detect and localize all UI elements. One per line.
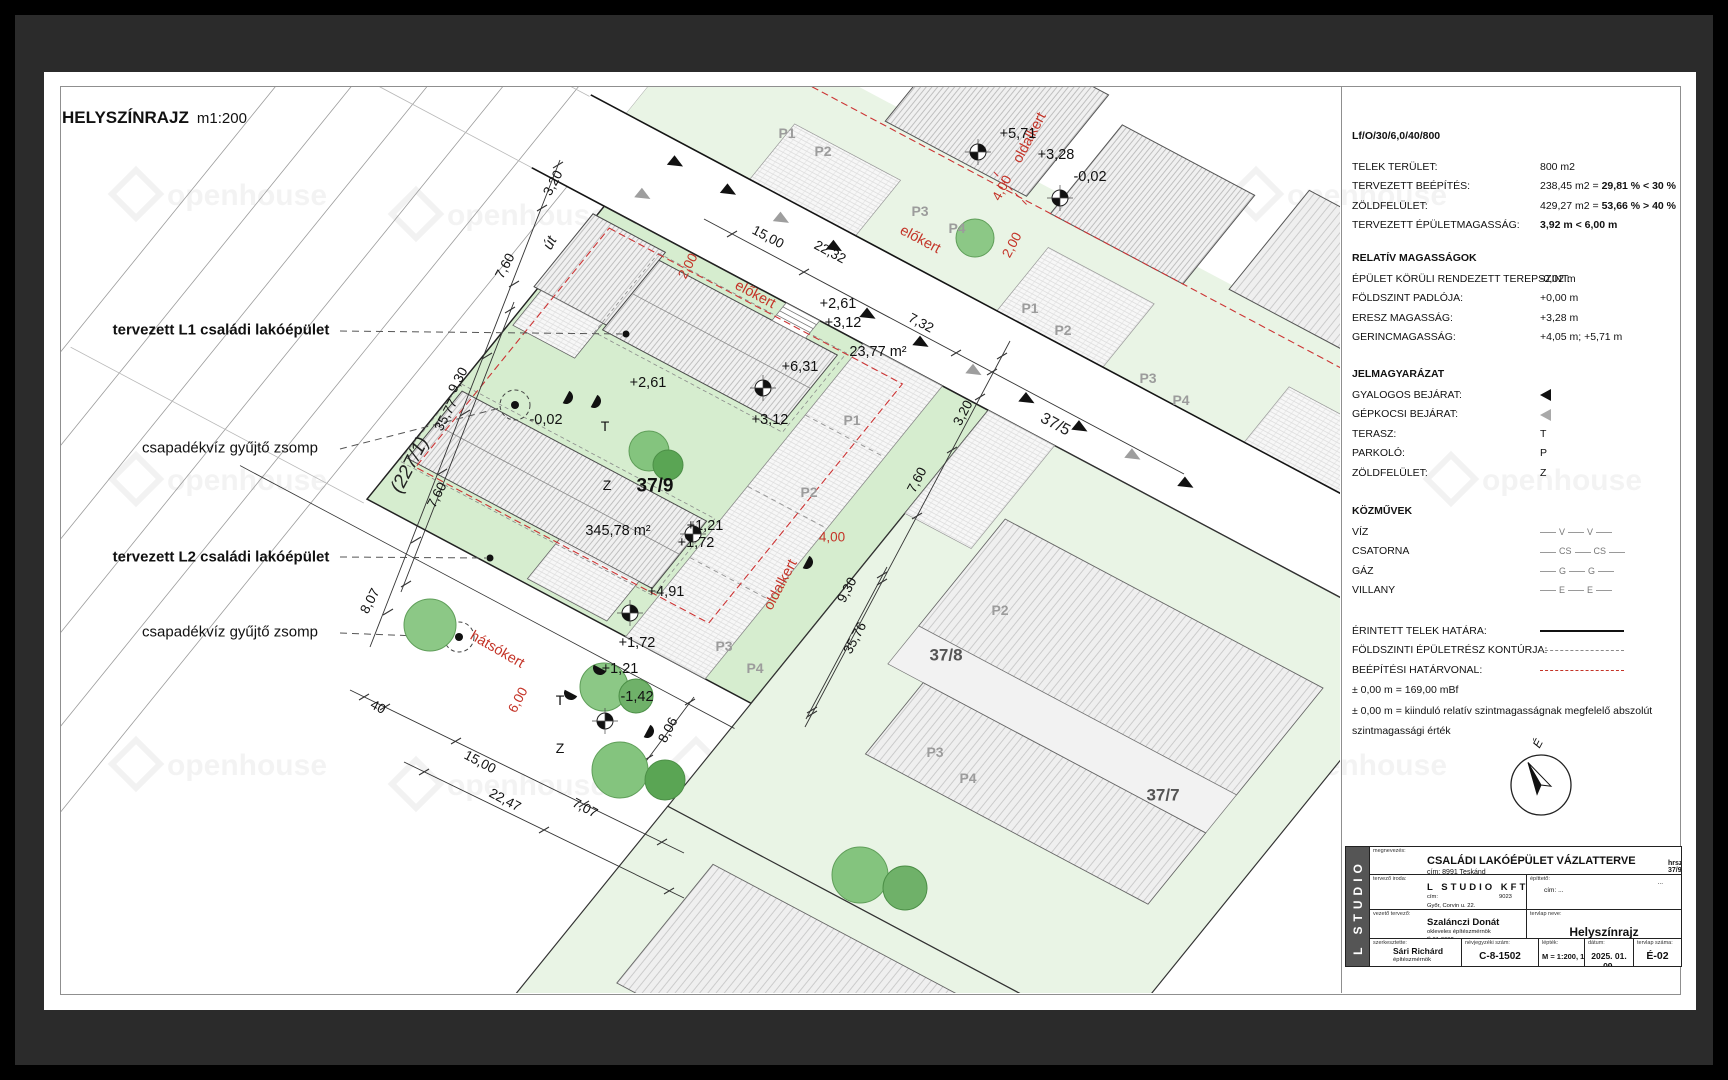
- tb-client-label: építtető:: [1530, 876, 1678, 882]
- screenshot-stage: openhouse: [0, 0, 1728, 1080]
- relative-rows: ÉPÜLET KÖRÜLI RENDEZETT TEREPSZINT:-0,02…: [1352, 270, 1677, 348]
- tb-lead-title: okleveles építészmérnök: [1427, 929, 1491, 935]
- legend-row: GYALOGOS BEJÁRAT:: [1352, 386, 1677, 405]
- tb-reg: C-8-1502: [1465, 951, 1535, 962]
- panel-divider: [1341, 86, 1342, 993]
- tb-sheetno: É-02: [1637, 950, 1678, 962]
- boundary-legend-row: BEÉPÍTÉSI HATÁRVONAL:: [1352, 661, 1677, 680]
- legend-row: GÉPKOCSI BEJÁRAT:: [1352, 405, 1677, 424]
- tb-firm-cell: tervező iroda: L STUDIO KFT . cím:9023 G…: [1369, 874, 1526, 909]
- tb-client-cell: építtető: cím: ... ...: [1526, 874, 1681, 909]
- tb-project-cell: megnevezés: CSALÁDI LAKÓÉPÜLET VÁZLATTER…: [1369, 847, 1681, 874]
- relative-height-row: GERINCMAGASSÁG:+4,05 m; +5,71 m: [1352, 328, 1677, 347]
- tb-editor-title: építészmérnök: [1393, 956, 1458, 964]
- tb-lead-name: Szalánczi Donát: [1427, 917, 1523, 928]
- utilities-heading: KÖZMŰVEK: [1352, 505, 1677, 517]
- relative-height-row: ÉPÜLET KÖRÜLI RENDEZETT TEREPSZINT:-0,02…: [1352, 270, 1677, 289]
- legend-rows: GYALOGOS BEJÁRAT:GÉPKOCSI BEJÁRAT:TERASZ…: [1352, 386, 1677, 483]
- utility-row: GÁZGG: [1352, 562, 1677, 581]
- sw-dgray-swatch: [1540, 650, 1624, 651]
- tb-reg-label: névjegyzéki szám:: [1465, 940, 1535, 946]
- site-data-rows: TELEK TERÜLET:800 m2TERVEZETT BEÉPÍTÉS:2…: [1352, 158, 1677, 236]
- tb-editor-name: Sári Richárd: [1393, 946, 1458, 956]
- site-data-row: ZÖLDFELÜLET:429,27 m2 = 53,66 % > 40 %: [1352, 197, 1677, 216]
- legend-row: TERASZ:T: [1352, 425, 1677, 444]
- utility-row: CSATORNACSCS: [1352, 542, 1677, 561]
- tb-scale-label: lépték:: [1542, 940, 1581, 946]
- tb-sheetno-cell: tervlap száma: É-02: [1633, 938, 1681, 966]
- site-data-row: TERVEZETT ÉPÜLETMAGASSÁG:3,92 m < 6,00 m: [1352, 216, 1677, 235]
- legend-row: PARKOLÓ:P: [1352, 444, 1677, 463]
- utility-row: VILLANYEE: [1352, 581, 1677, 600]
- tb-firm-name: L STUDIO KFT .: [1427, 882, 1523, 893]
- site-data-row: TELEK TERÜLET:800 m2: [1352, 158, 1677, 177]
- tb-firm-rows: cím:9023 Győr, Corvin u. 22.telefon:+36/…: [1427, 893, 1523, 909]
- legend-row: ZÖLDFELÜLET:Z: [1352, 464, 1677, 483]
- north-compass: É: [1500, 707, 1582, 827]
- tb-date-cell: dátum: 2025. 01. 09.: [1584, 938, 1633, 966]
- tb-client-line: cím: ...: [1544, 887, 1678, 894]
- drawing-sheet: openhouse: [44, 72, 1696, 1010]
- studio-logo-bar: L STUDIO: [1346, 847, 1370, 966]
- site-data-row: TERVEZETT BEÉPÍTÉS:238,45 m2 = 29,81 % <…: [1352, 177, 1677, 196]
- tb-reg-cell: névjegyzéki szám: C-8-1502: [1461, 938, 1538, 966]
- north-letter: É: [1529, 735, 1546, 750]
- tb-firm-row: cím:9023 Győr, Corvin u. 22.: [1427, 893, 1523, 909]
- utility-row: VÍZVV: [1352, 523, 1677, 542]
- sw-solid-swatch: [1540, 630, 1624, 632]
- relative-height-row: FÖLDSZINT PADLÓJA:+0,00 m: [1352, 289, 1677, 308]
- tb-client-dots: ...: [1658, 879, 1663, 886]
- tb-sheetno-label: tervlap száma:: [1637, 940, 1678, 946]
- tb-sheetname: Helyszínrajz: [1530, 925, 1678, 938]
- utility-rows: VÍZVVCSATORNACSCSGÁZGGVILLANYEE: [1352, 523, 1677, 601]
- title-text: HELYSZÍNRAJZ: [62, 108, 189, 127]
- tb-sheetname-cell: tervlap neve: Helyszínrajz: [1526, 909, 1681, 938]
- pedestrian-entry-icon: [1540, 389, 1551, 401]
- tb-scale: M = 1:200, 1:500: [1542, 952, 1581, 961]
- sw-dred-swatch: [1540, 670, 1624, 671]
- tb-project-title: CSALÁDI LAKÓÉPÜLET VÁZLATTERVE: [1427, 855, 1678, 867]
- tb-date-label: dátum:: [1588, 940, 1630, 946]
- car-entry-icon: [1540, 409, 1551, 421]
- boundary-legend-row: ÉRINTETT TELEK HATÁRA:: [1352, 622, 1677, 641]
- legend-heading: JELMAGYARÁZAT: [1352, 368, 1677, 380]
- title-block: L STUDIO megnevezés: CSALÁDI LAKÓÉPÜLET …: [1345, 846, 1682, 967]
- boundary-rows: ÉRINTETT TELEK HATÁRA:FÖLDSZINTI ÉPÜLETR…: [1352, 622, 1677, 680]
- tb-lead-cell: vezető tervező: Szalánczi Donát oklevele…: [1369, 909, 1526, 938]
- tb-parcel: hrsz: 37/9: [1668, 860, 1681, 874]
- tb-sheetname-label: tervlap neve:: [1530, 911, 1678, 917]
- tb-scale-cell: lépték: M = 1:200, 1:500: [1538, 938, 1584, 966]
- boundary-legend-row: FÖLDSZINTI ÉPÜLETRÉSZ KONTÚRJA:: [1352, 641, 1677, 660]
- datum-line: ± 0,00 m = 169,00 mBf: [1352, 680, 1677, 701]
- zoning-code: Lf/O/30/6,0/40/800: [1352, 130, 1677, 142]
- tb-date: 2025. 01. 09.: [1588, 951, 1630, 966]
- title-scale: m1:200: [197, 110, 247, 127]
- page-title: HELYSZÍNRAJZm1:200: [62, 108, 247, 128]
- tb-project-label: megnevezés:: [1373, 848, 1678, 854]
- relative-height-row: ERESZ MAGASSÁG:+3,28 m: [1352, 309, 1677, 328]
- tb-editor-cell: szerkesztette: Sári Richárd építészmérnö…: [1369, 938, 1461, 966]
- relative-heading: RELATÍV MAGASSÁGOK: [1352, 252, 1677, 264]
- studio-logo-text: L STUDIO: [1351, 859, 1365, 955]
